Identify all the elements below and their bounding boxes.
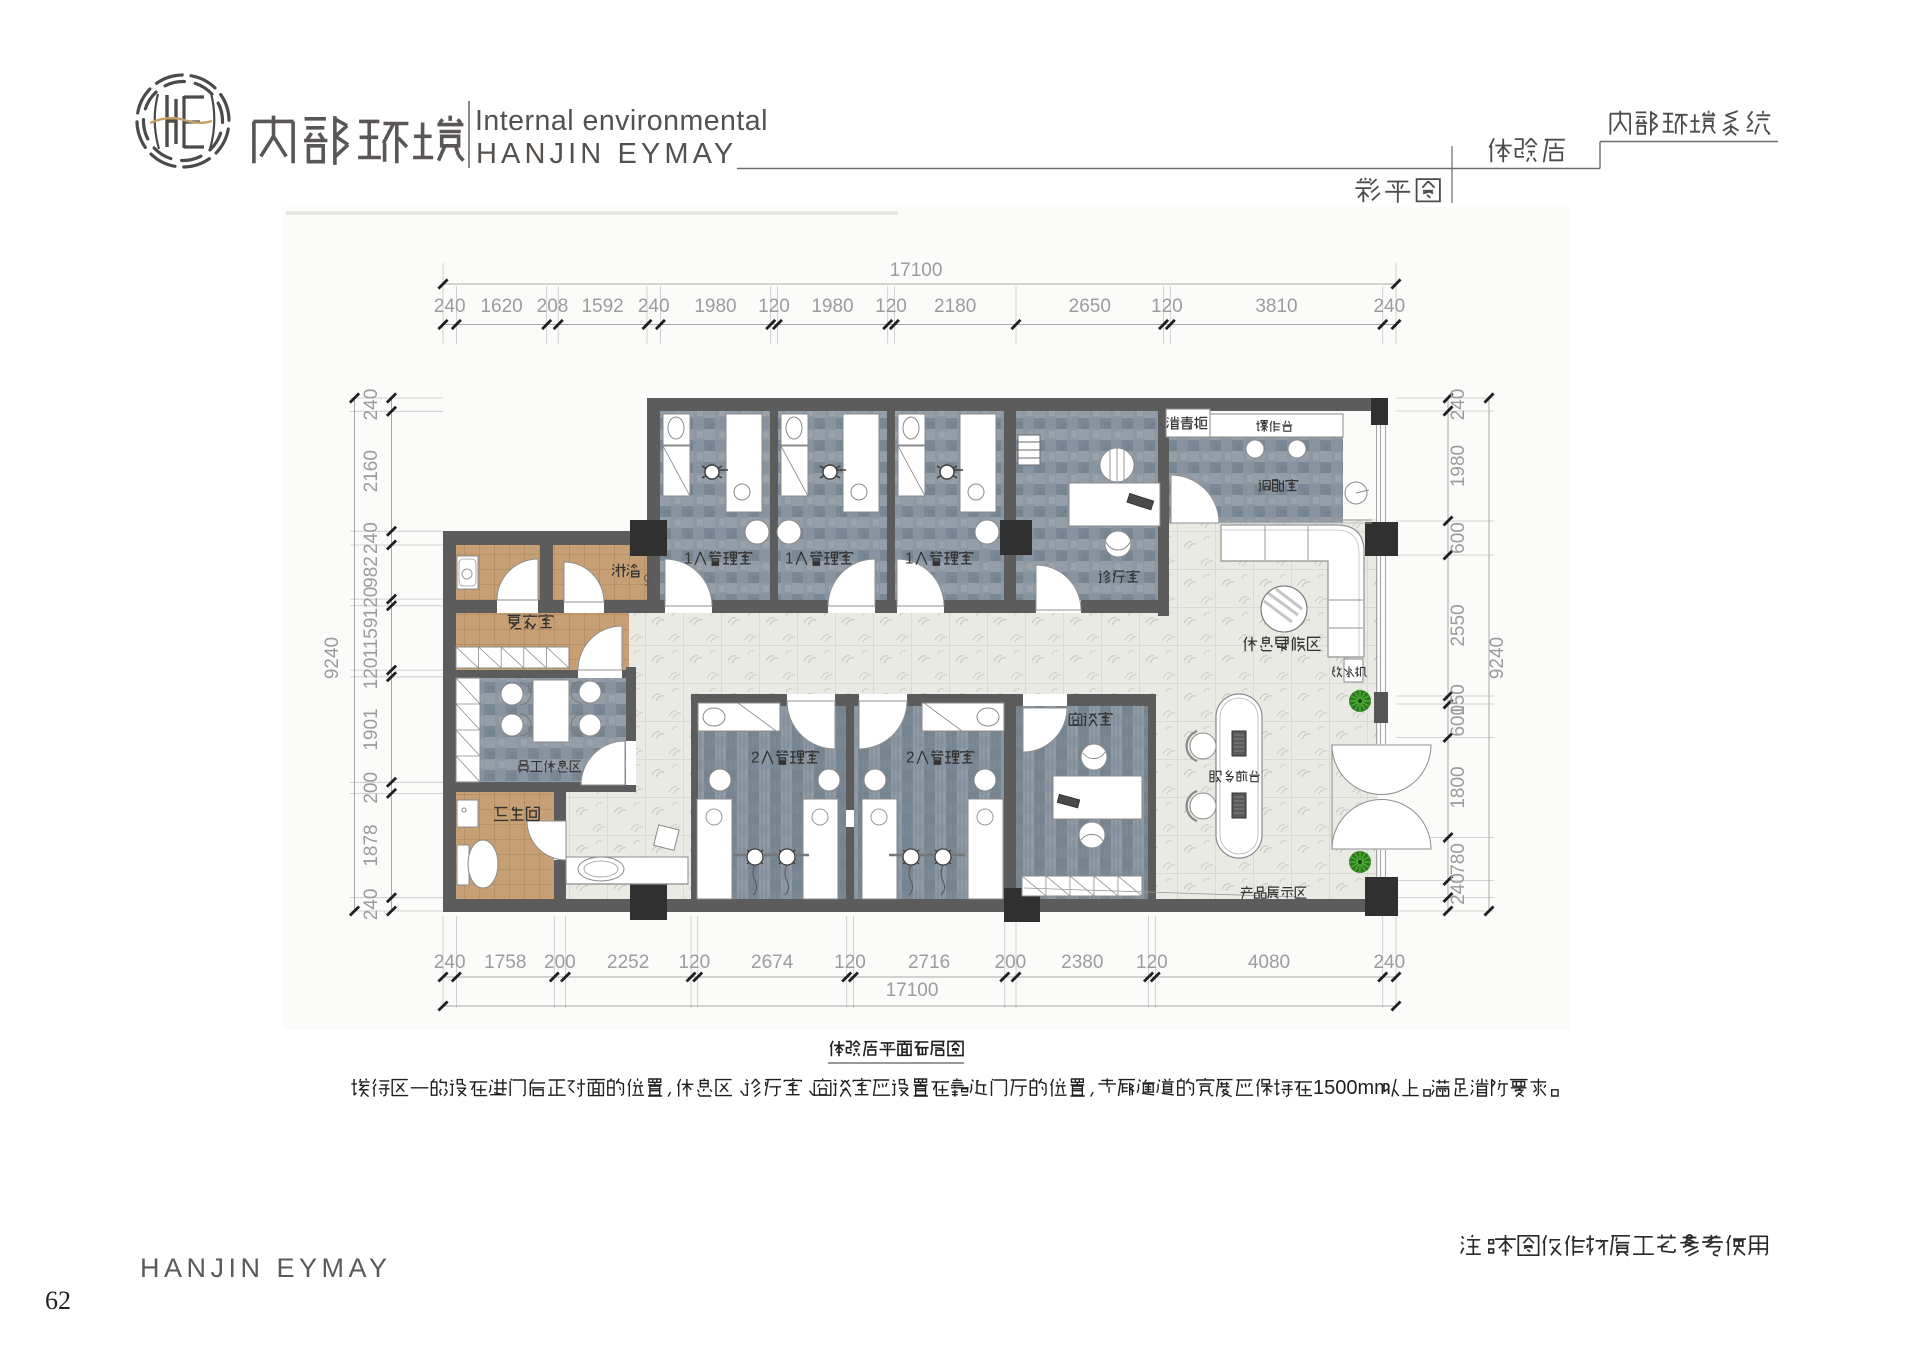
svg-text:1: 1: [905, 550, 914, 567]
svg-text:1: 1: [785, 550, 794, 567]
svg-text:62: 62: [45, 1286, 71, 1315]
svg-text:240: 240: [361, 389, 382, 421]
svg-text:120: 120: [1136, 952, 1168, 973]
svg-text:Internal environmental: Internal environmental: [475, 105, 768, 137]
svg-text:780: 780: [1448, 843, 1469, 875]
svg-text:600: 600: [1448, 705, 1469, 737]
svg-text:2674: 2674: [751, 952, 794, 973]
svg-text:2252: 2252: [607, 952, 649, 973]
svg-text:2160: 2160: [361, 450, 382, 492]
svg-text:9240: 9240: [1487, 637, 1508, 679]
svg-text:1901: 1901: [361, 708, 382, 750]
svg-text:4080: 4080: [1248, 952, 1290, 973]
svg-text:200: 200: [361, 772, 382, 804]
svg-text:2650: 2650: [1069, 296, 1111, 317]
svg-text:2: 2: [906, 749, 915, 766]
svg-text:240: 240: [1448, 873, 1469, 905]
svg-text:120: 120: [834, 952, 866, 973]
svg-text:2380: 2380: [1061, 952, 1103, 973]
svg-text:1: 1: [684, 550, 693, 567]
svg-text:1592: 1592: [581, 296, 623, 317]
svg-text:2180: 2180: [934, 296, 976, 317]
svg-text:2716: 2716: [908, 952, 950, 973]
svg-text:240: 240: [361, 522, 382, 554]
svg-text:120: 120: [361, 587, 382, 619]
svg-text:120: 120: [679, 952, 711, 973]
svg-text:240: 240: [638, 296, 670, 317]
svg-text:120: 120: [361, 658, 382, 690]
svg-text:600: 600: [1448, 522, 1469, 554]
svg-text:1159: 1159: [361, 618, 382, 659]
svg-text:240: 240: [434, 296, 466, 317]
svg-text:17100: 17100: [886, 980, 939, 1001]
svg-text:982: 982: [361, 556, 382, 588]
svg-text:HANJIN EYMAY: HANJIN EYMAY: [140, 1253, 392, 1283]
svg-text:240: 240: [361, 889, 382, 921]
svg-text:240: 240: [434, 952, 466, 973]
svg-text:1980: 1980: [1448, 445, 1469, 487]
svg-text:9240: 9240: [322, 637, 343, 679]
svg-text:3810: 3810: [1255, 296, 1297, 317]
svg-text:1500mm: 1500mm: [1313, 1077, 1391, 1099]
svg-text:120: 120: [1151, 296, 1183, 317]
svg-text:2550: 2550: [1448, 604, 1469, 646]
svg-text:200: 200: [544, 952, 576, 973]
svg-text:200: 200: [995, 952, 1027, 973]
svg-text:240: 240: [1373, 296, 1405, 317]
svg-text:1878: 1878: [361, 824, 382, 866]
svg-text:HANJIN EYMAY: HANJIN EYMAY: [476, 138, 737, 170]
svg-text:1758: 1758: [484, 952, 526, 973]
svg-text:1620: 1620: [480, 296, 522, 317]
svg-text:208: 208: [537, 296, 569, 317]
svg-text:1980: 1980: [811, 296, 853, 317]
svg-text:2: 2: [751, 749, 760, 766]
svg-text:17100: 17100: [890, 260, 943, 281]
svg-text:120: 120: [758, 296, 790, 317]
svg-text:120: 120: [875, 296, 907, 317]
svg-text:240: 240: [1373, 952, 1405, 973]
svg-text:240: 240: [1448, 389, 1469, 421]
svg-text:1800: 1800: [1448, 766, 1469, 808]
svg-text:1980: 1980: [694, 296, 736, 317]
